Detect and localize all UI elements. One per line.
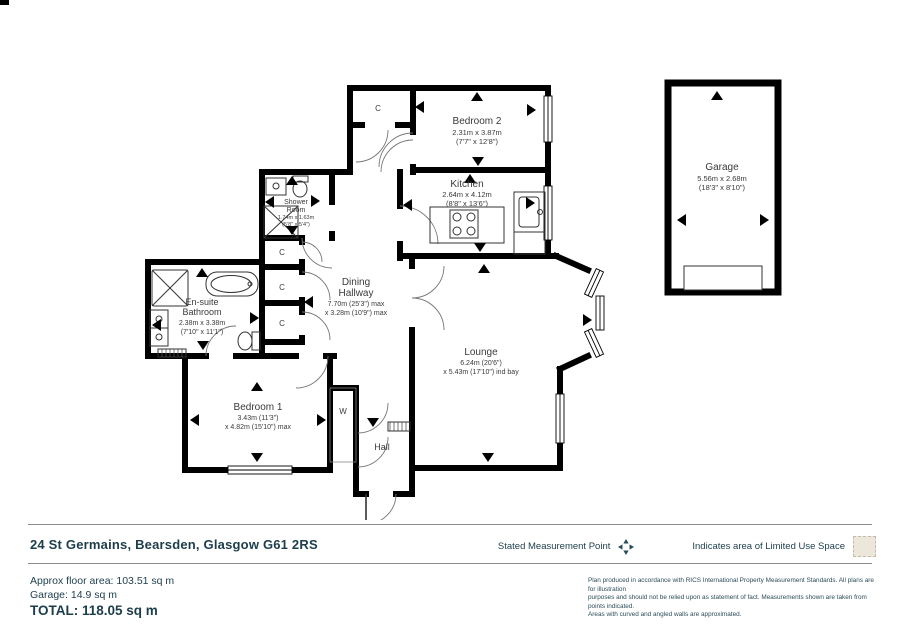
ensuite-shower-tray xyxy=(152,270,188,306)
room-label-garage: Garage xyxy=(705,162,739,173)
svg-text:5.56m x 2.68m: 5.56m x 2.68m xyxy=(697,174,747,183)
room-label-dining-hallway: Dining xyxy=(342,277,370,288)
property-address: 24 St Germains, Bearsden, Glasgow G61 2R… xyxy=(30,537,318,552)
room-label-hall: Hall xyxy=(374,442,390,452)
total-area: TOTAL: 118.05 sq m xyxy=(30,602,174,619)
cupboard-label: C xyxy=(279,319,285,328)
four-way-arrow-icon xyxy=(618,539,634,555)
svg-text:Hallway: Hallway xyxy=(338,288,373,299)
cupboard-label: C xyxy=(375,104,381,113)
svg-text:Bathroom: Bathroom xyxy=(182,307,221,317)
room-label-bedroom1: Bedroom 1 xyxy=(234,402,283,413)
divider-top xyxy=(28,524,872,525)
svg-text:7.70m (25'3") max: 7.70m (25'3") max xyxy=(328,301,385,308)
kitchen-cabinet xyxy=(514,232,545,254)
svg-text:x 4.82m (15'10") max: x 4.82m (15'10") max xyxy=(225,424,292,431)
svg-text:x 5.43m (17'10") ind bay: x 5.43m (17'10") ind bay xyxy=(443,369,519,376)
room-label-kitchen: Kitchen xyxy=(450,179,483,190)
svg-text:6.24m (20'6"): 6.24m (20'6") xyxy=(460,360,502,367)
approx-floor-area: Approx floor area: 103.51 sq m xyxy=(30,574,174,588)
hall-radiator xyxy=(388,422,410,431)
wardrobe-label: W xyxy=(339,407,347,416)
svg-text:(18'3" x 8'10"): (18'3" x 8'10") xyxy=(699,183,746,192)
garage-area: Garage: 14.9 sq m xyxy=(30,588,174,602)
cupboard-label: C xyxy=(279,283,285,292)
svg-text:(5'8" x 5'4"): (5'8" x 5'4") xyxy=(282,222,310,228)
legend-measurement-point-label: Stated Measurement Point xyxy=(498,541,610,552)
disclaimer: Plan produced in accordance with RICS In… xyxy=(588,577,880,620)
disclaimer-line: Areas with curved and angled walls are a… xyxy=(588,611,880,620)
disclaimer-line: Plan produced in accordance with RICS In… xyxy=(588,577,880,594)
floorplan-page: Bedroom 2 2.31m x 3.87m (7'7" x 12'8") K… xyxy=(0,0,900,636)
ensuite-radiator xyxy=(158,349,186,357)
svg-text:2.38m x 3.38m: 2.38m x 3.38m xyxy=(179,320,225,327)
kitchen-island xyxy=(430,207,504,243)
disclaimer-line: purposes and should not be relied upon a… xyxy=(588,594,880,611)
room-label-shower: Shower xyxy=(284,199,308,206)
shower-room-toilet xyxy=(293,176,308,197)
kitchen-sink-unit xyxy=(514,192,545,232)
svg-text:3.43m (11'3"): 3.43m (11'3") xyxy=(237,415,278,422)
room-label-lounge: Lounge xyxy=(464,347,498,358)
svg-text:2.64m x 4.12m: 2.64m x 4.12m xyxy=(442,190,492,199)
svg-text:x 3.28m (10'9") max: x 3.28m (10'9") max xyxy=(325,310,388,317)
limited-use-swatch xyxy=(853,536,876,557)
room-label-bedroom2: Bedroom 2 xyxy=(453,116,502,127)
svg-text:Room: Room xyxy=(287,207,306,214)
ensuite-bathtub xyxy=(206,272,258,296)
svg-text:(7'7" x 12'8"): (7'7" x 12'8") xyxy=(456,137,498,146)
ensuite-toilet xyxy=(238,332,260,350)
legend-limited-use-label: Indicates area of Limited Use Space xyxy=(692,541,845,552)
garage-door xyxy=(684,266,762,290)
area-summary: Approx floor area: 103.51 sq m Garage: 1… xyxy=(30,574,174,619)
room-label-ensuite: En-suite xyxy=(185,297,218,307)
floorplan-drawing: Bedroom 2 2.31m x 3.87m (7'7" x 12'8") K… xyxy=(0,0,900,520)
legend: Stated Measurement Point Indicates area … xyxy=(498,536,876,557)
door-swings xyxy=(206,130,444,520)
divider-bottom xyxy=(28,563,872,564)
wardrobe-outline xyxy=(330,388,356,462)
svg-text:2.31m x 3.87m: 2.31m x 3.87m xyxy=(452,128,502,137)
svg-text:1.74m x 1.63m: 1.74m x 1.63m xyxy=(278,215,315,221)
shower-room-sink xyxy=(266,178,286,195)
svg-text:(7'10" x 11'1"): (7'10" x 11'1") xyxy=(181,329,224,336)
cupboard-label: C xyxy=(279,248,285,257)
svg-text:(8'8" x 13'6"): (8'8" x 13'6") xyxy=(446,199,488,208)
